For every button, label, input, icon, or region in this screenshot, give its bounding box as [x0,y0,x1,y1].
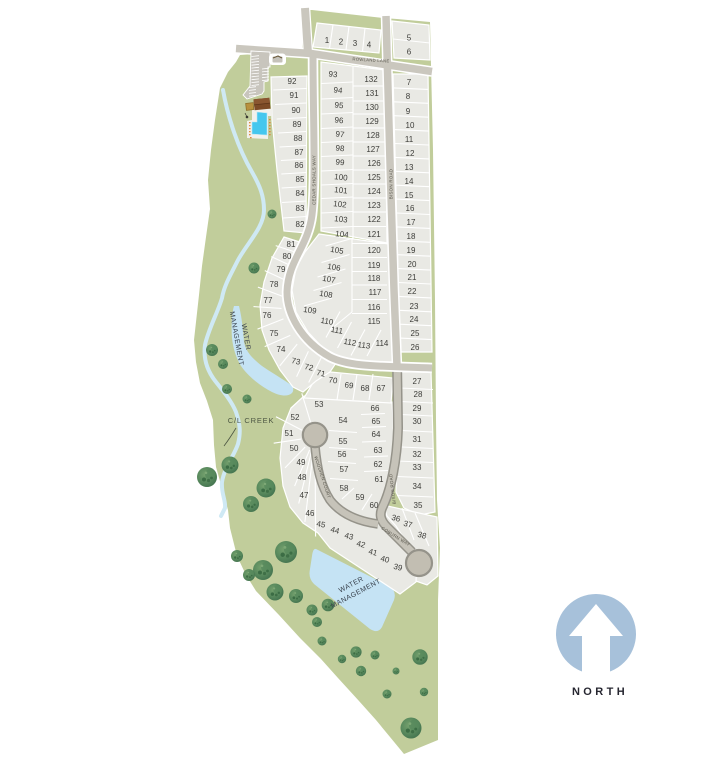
svg-text:58: 58 [340,484,349,493]
svg-text:59: 59 [356,493,365,502]
svg-text:2: 2 [339,37,344,46]
svg-text:61: 61 [375,475,384,484]
svg-text:14: 14 [405,177,414,186]
svg-text:63: 63 [374,446,383,455]
svg-text:127: 127 [366,145,380,154]
svg-text:95: 95 [334,100,344,110]
svg-text:132: 132 [364,75,378,84]
svg-text:64: 64 [372,430,381,439]
svg-text:C/L CREEK: C/L CREEK [228,416,275,425]
svg-text:31: 31 [413,435,422,444]
svg-text:20: 20 [408,260,417,269]
svg-text:122: 122 [367,215,381,224]
svg-text:21: 21 [408,273,417,282]
svg-text:12: 12 [406,149,415,158]
svg-text:92: 92 [288,77,297,86]
svg-text:78: 78 [270,280,279,289]
svg-text:47: 47 [300,491,309,500]
svg-text:54: 54 [339,416,348,425]
svg-text:48: 48 [298,473,307,482]
svg-text:65: 65 [372,417,381,426]
svg-text:50: 50 [290,444,299,453]
svg-text:32: 32 [413,450,422,459]
svg-text:53: 53 [315,400,324,409]
svg-text:19: 19 [407,246,416,255]
svg-text:18: 18 [407,232,416,241]
svg-text:102: 102 [333,199,348,209]
svg-text:86: 86 [295,161,304,170]
svg-text:89: 89 [293,120,302,129]
svg-text:4: 4 [367,40,372,49]
svg-text:56: 56 [338,450,347,459]
svg-text:15: 15 [405,191,414,200]
svg-text:8: 8 [406,92,411,101]
svg-text:68: 68 [361,384,370,393]
svg-text:NORTH: NORTH [572,686,628,698]
svg-text:109: 109 [303,305,318,316]
svg-text:121: 121 [367,230,381,239]
svg-text:81: 81 [287,240,296,249]
svg-text:80: 80 [283,252,292,261]
svg-text:16: 16 [406,204,415,213]
svg-text:90: 90 [292,106,301,115]
svg-text:101: 101 [334,185,349,195]
svg-text:116: 116 [368,303,381,312]
svg-text:88: 88 [294,134,303,143]
svg-text:28: 28 [414,390,423,399]
svg-text:11: 11 [405,135,414,144]
svg-text:120: 120 [367,246,381,255]
svg-text:100: 100 [334,172,349,182]
svg-text:129: 129 [365,117,379,126]
svg-text:26: 26 [411,343,420,352]
svg-text:46: 46 [306,509,315,518]
svg-text:60: 60 [370,501,379,510]
svg-text:96: 96 [334,115,344,125]
svg-text:51: 51 [285,429,294,438]
svg-text:30: 30 [413,417,422,426]
svg-text:130: 130 [365,103,379,112]
svg-text:75: 75 [270,329,279,338]
svg-text:83: 83 [296,204,305,213]
svg-text:118: 118 [368,274,381,283]
svg-text:123: 123 [367,201,381,210]
svg-text:5: 5 [407,33,412,42]
svg-text:17: 17 [407,218,416,227]
svg-text:49: 49 [297,458,306,467]
svg-text:62: 62 [374,460,383,469]
svg-text:97: 97 [335,129,345,139]
svg-text:23: 23 [410,302,419,311]
svg-text:91: 91 [290,91,299,100]
svg-text:6: 6 [407,47,412,56]
svg-text:128: 128 [366,131,380,140]
svg-text:104: 104 [335,229,350,239]
svg-text:125: 125 [367,173,381,182]
svg-text:35: 35 [414,501,423,510]
svg-text:33: 33 [413,463,422,472]
svg-text:115: 115 [368,317,381,326]
svg-text:70: 70 [328,375,339,385]
svg-text:124: 124 [367,187,381,196]
svg-text:67: 67 [377,384,386,393]
svg-text:9: 9 [406,107,411,116]
svg-text:BISON ROAD: BISON ROAD [389,169,394,200]
svg-text:99: 99 [335,157,345,167]
svg-text:113: 113 [357,340,371,351]
svg-text:76: 76 [263,311,272,320]
svg-text:131: 131 [365,89,379,98]
svg-text:55: 55 [339,437,348,446]
svg-text:57: 57 [340,465,349,474]
svg-text:CEDAR SHOALS WAY: CEDAR SHOALS WAY [312,155,317,205]
svg-text:103: 103 [334,214,349,224]
svg-text:117: 117 [369,288,382,297]
svg-text:98: 98 [335,143,345,153]
svg-text:69: 69 [344,380,355,390]
svg-text:94: 94 [333,85,343,95]
svg-text:77: 77 [264,296,273,305]
svg-text:34: 34 [413,482,422,491]
svg-text:87: 87 [295,148,304,157]
svg-text:22: 22 [408,287,417,296]
svg-text:119: 119 [368,261,381,270]
svg-text:10: 10 [406,121,415,130]
svg-text:1: 1 [325,36,330,45]
svg-text:7: 7 [407,78,412,87]
svg-text:84: 84 [296,189,305,198]
svg-text:74: 74 [277,345,286,354]
svg-text:66: 66 [371,404,380,413]
svg-text:93: 93 [328,69,338,79]
svg-text:79: 79 [277,265,286,274]
svg-text:126: 126 [367,159,381,168]
svg-text:29: 29 [413,404,422,413]
svg-text:27: 27 [413,377,422,386]
svg-text:13: 13 [405,163,414,172]
svg-text:24: 24 [410,315,419,324]
svg-text:25: 25 [411,329,420,338]
svg-text:82: 82 [296,220,305,229]
svg-text:114: 114 [376,339,389,348]
svg-text:85: 85 [296,175,305,184]
svg-text:52: 52 [291,413,300,422]
svg-text:3: 3 [353,39,358,48]
